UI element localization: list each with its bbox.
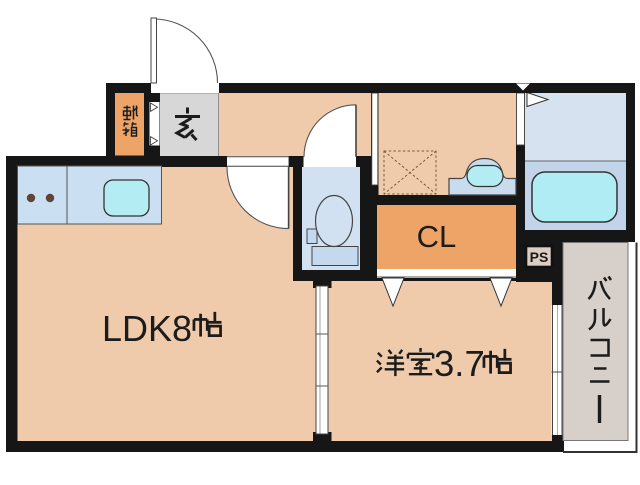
svg-text:3.7: 3.7 [434,343,485,384]
svg-text:CL: CL [417,219,457,254]
svg-text:PS: PS [530,249,549,265]
svg-text:LDK8: LDK8 [102,308,192,349]
